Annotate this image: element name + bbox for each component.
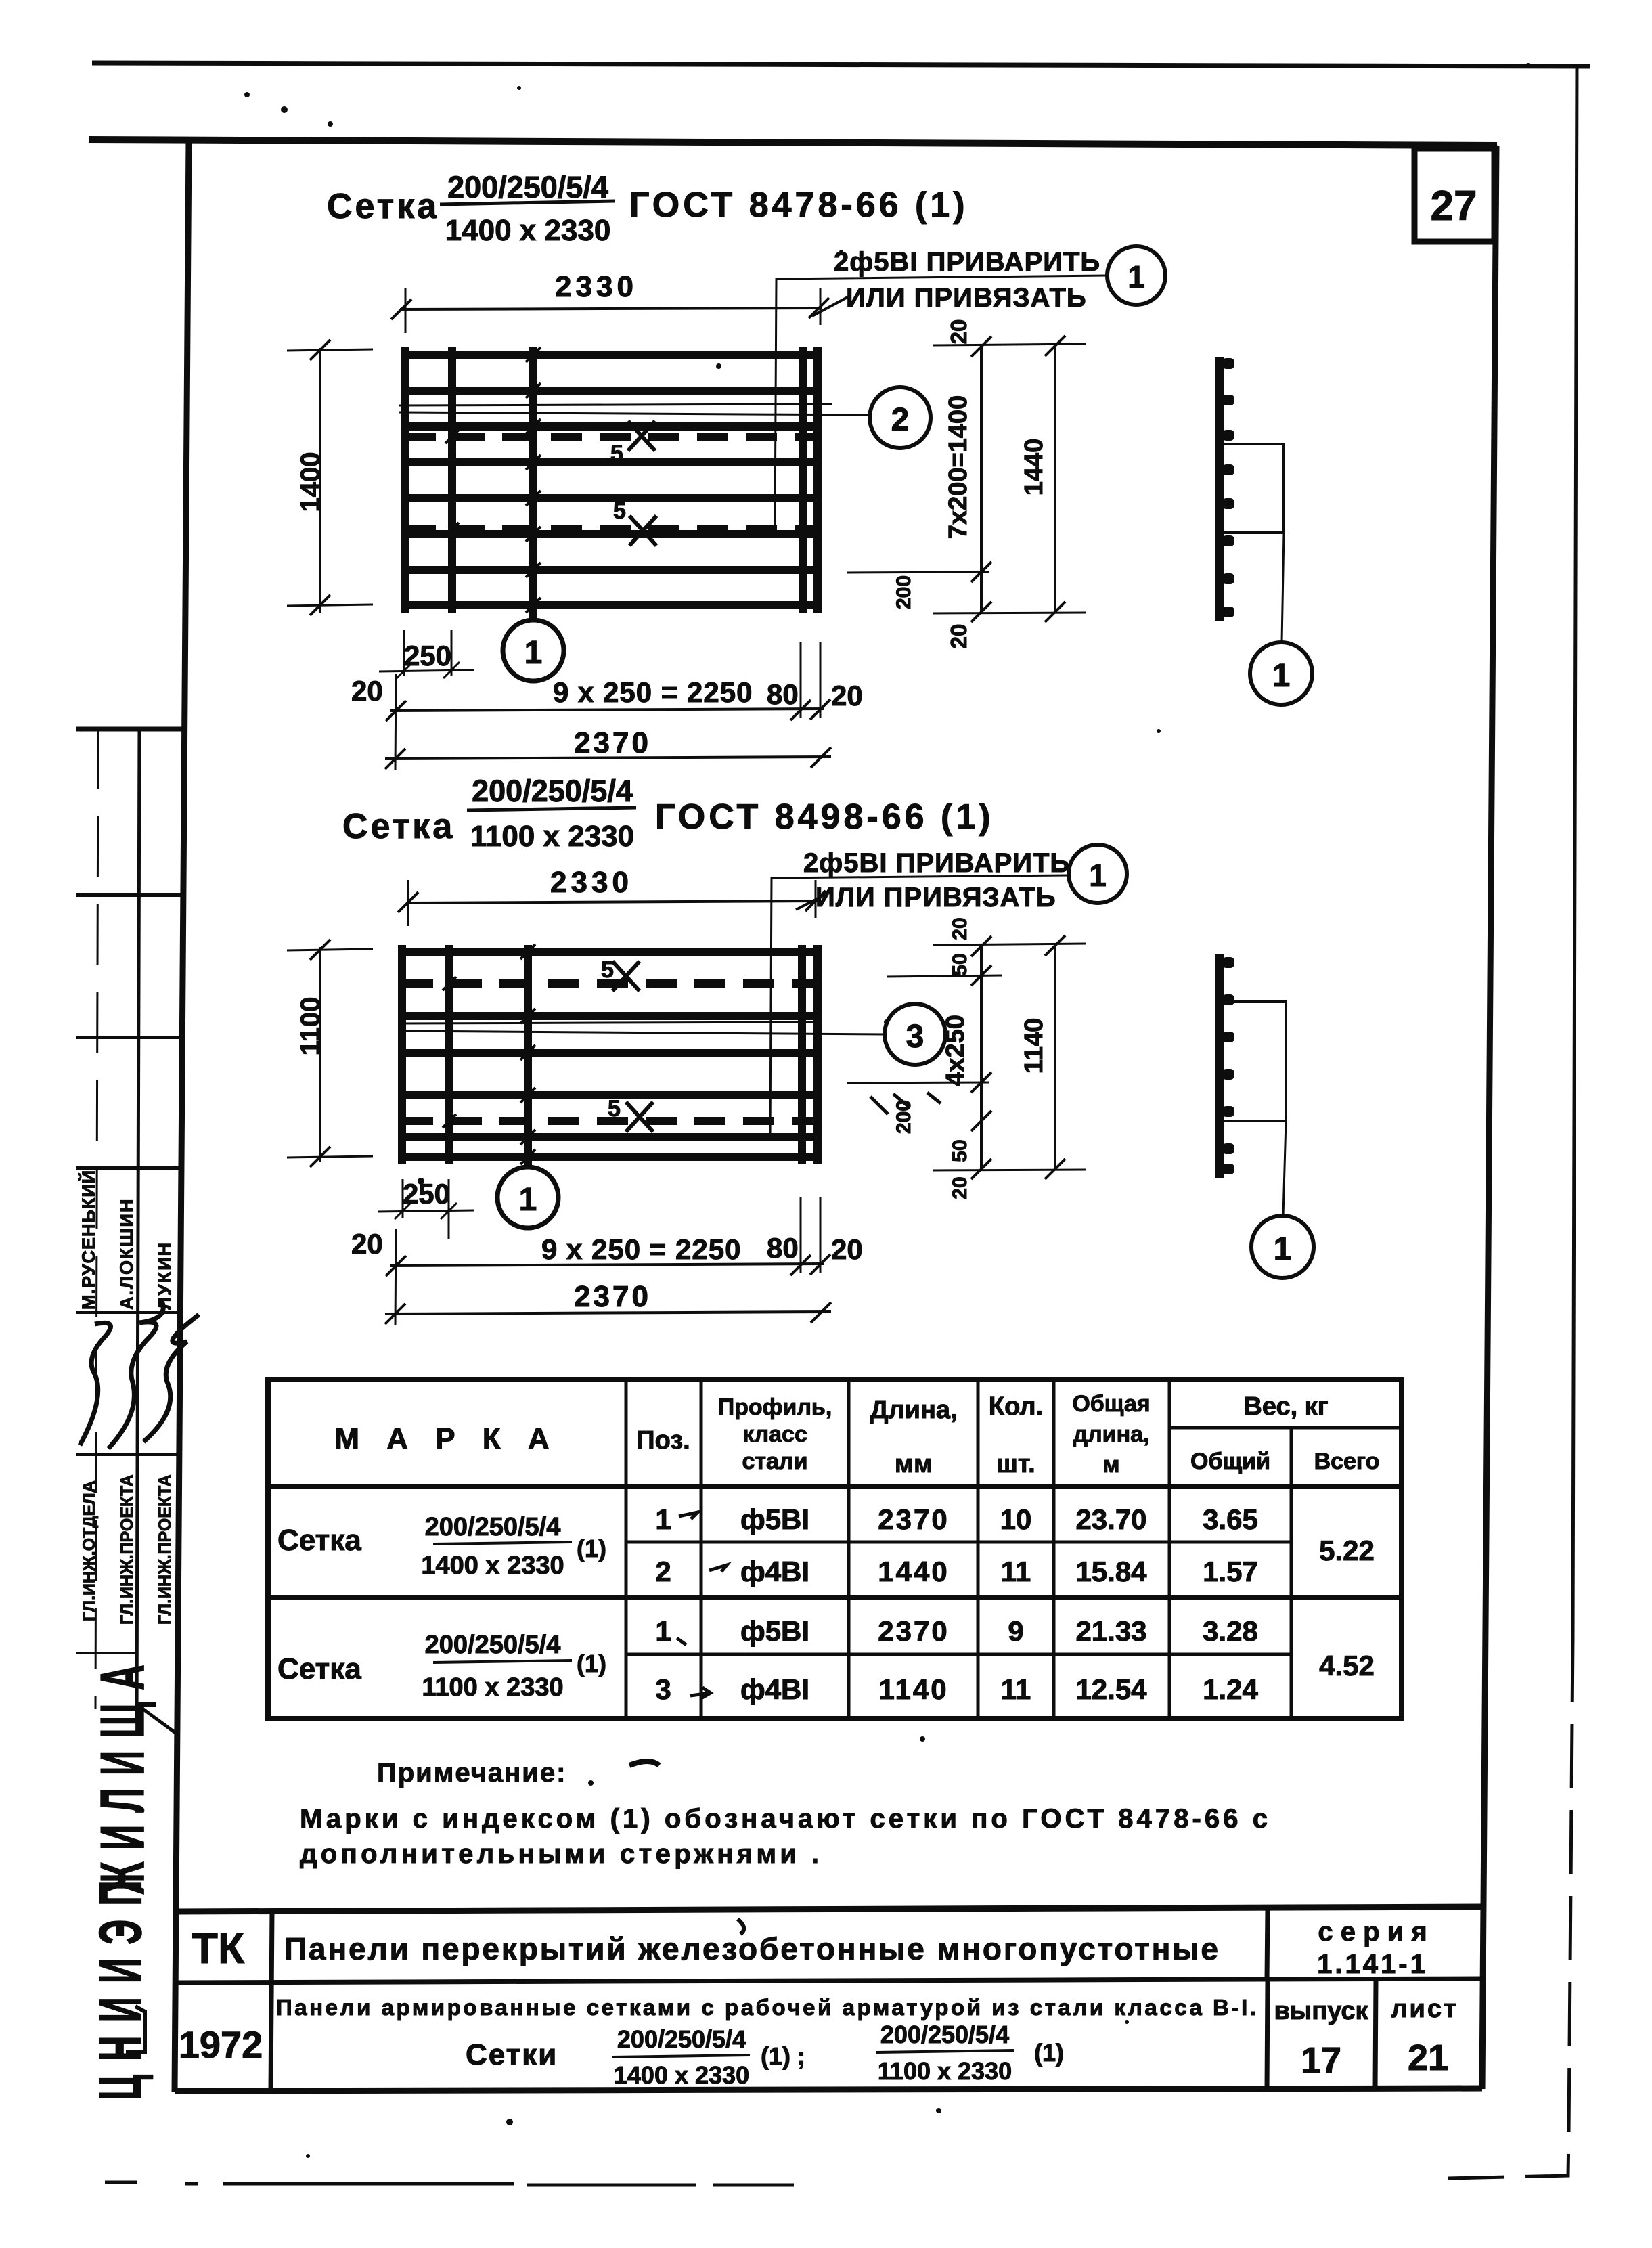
svg-text:Сетка: Сетка	[277, 1524, 361, 1557]
svg-text:12.54: 12.54	[1075, 1673, 1147, 1705]
svg-text:1: 1	[1274, 1231, 1292, 1267]
svg-text:ИЛИ ПРИВЯЗАТЬ: ИЛИ ПРИВЯЗАТЬ	[846, 283, 1087, 313]
svg-text:21.33: 21.33	[1075, 1615, 1146, 1647]
svg-text:20: 20	[351, 1228, 383, 1260]
svg-text:1400 x 2330: 1400 x 2330	[445, 214, 611, 247]
svg-text:5: 5	[613, 498, 626, 524]
svg-text:1.57: 1.57	[1203, 1556, 1258, 1587]
svg-text:М.РУСЕНЬКИЙ: М.РУСЕНЬКИЙ	[78, 1170, 99, 1310]
svg-text:шт.: шт.	[996, 1450, 1035, 1478]
svg-text:(1): (1)	[577, 1535, 606, 1562]
svg-text:200/250/5/4: 200/250/5/4	[425, 1513, 561, 1541]
svg-text:1972: 1972	[179, 2023, 263, 2066]
svg-text:200/250/5/4: 200/250/5/4	[447, 170, 608, 204]
svg-text:Сетка: Сетка	[342, 807, 455, 846]
svg-text:Примечание:: Примечание:	[377, 1758, 566, 1788]
svg-text:80: 80	[767, 1232, 799, 1264]
svg-text:2: 2	[655, 1556, 671, 1587]
svg-text:ГЛ.ИНЖ.ПРОЕКТА: ГЛ.ИНЖ.ПРОЕКТА	[156, 1474, 175, 1625]
svg-text:15.84: 15.84	[1075, 1556, 1147, 1587]
svg-text:9: 9	[1008, 1615, 1023, 1647]
svg-text:200: 200	[893, 575, 915, 609]
svg-text:1440: 1440	[878, 1556, 949, 1587]
svg-text:Всего: Всего	[1314, 1449, 1380, 1474]
svg-text:3.28: 3.28	[1203, 1615, 1258, 1647]
svg-text:200/250/5/4: 200/250/5/4	[425, 1631, 561, 1659]
svg-text:5: 5	[608, 1096, 621, 1122]
svg-text:5: 5	[610, 441, 623, 466]
svg-text:9 х 250 = 2250: 9 х 250 = 2250	[541, 1233, 741, 1265]
svg-text:4х250: 4х250	[941, 1015, 970, 1086]
svg-text:4.52: 4.52	[1319, 1650, 1375, 1681]
svg-text:200/250/5/4: 200/250/5/4	[472, 774, 633, 808]
svg-text:11: 11	[1001, 1556, 1031, 1587]
svg-text:1100 х 2330: 1100 х 2330	[878, 2057, 1012, 2085]
svg-text:1: 1	[519, 1182, 537, 1218]
svg-text:дополнительными стержнями: дополнительными стержнями .	[300, 1839, 819, 1869]
svg-text:1100 x 2330: 1100 x 2330	[470, 820, 634, 853]
svg-text:7х200=1400: 7х200=1400	[944, 395, 973, 539]
svg-text:9 х 250 = 2250: 9 х 250 = 2250	[553, 676, 753, 708]
svg-text:20: 20	[946, 319, 971, 345]
svg-text:Марки с индексом (1) обозн: Марки с индексом (1) обозначают сетки по…	[300, 1804, 1268, 1834]
svg-text:Панели армированные сетками с: Панели армированные сетками с рабочей ар…	[276, 1995, 1256, 2020]
svg-text:лист: лист	[1391, 1995, 1458, 2023]
svg-text:1400 х 2330: 1400 х 2330	[421, 1551, 564, 1580]
svg-text:1.24: 1.24	[1203, 1673, 1258, 1705]
svg-text:Кол.: Кол.	[989, 1392, 1043, 1421]
svg-text:ЖИЛИЩА: ЖИЛИЩА	[88, 1652, 157, 1894]
svg-text:2ф5ВI ПРИВАРИТЬ: 2ф5ВI ПРИВАРИТЬ	[803, 848, 1070, 878]
svg-text:А.ЛОКШИН: А.ЛОКШИН	[116, 1198, 137, 1310]
svg-text:200: 200	[893, 1100, 915, 1134]
svg-text:20: 20	[831, 1233, 863, 1265]
svg-text:ГОСТ 8498-66 (1): ГОСТ 8498-66 (1)	[655, 797, 994, 837]
svg-text:1: 1	[655, 1503, 671, 1535]
svg-text:5: 5	[601, 957, 614, 983]
svg-text:20: 20	[831, 680, 863, 711]
svg-text:ф4ВI: ф4ВI	[740, 1673, 809, 1705]
svg-text:стали: стали	[742, 1449, 808, 1474]
svg-text:1140: 1140	[1020, 1018, 1048, 1074]
svg-text:2370: 2370	[574, 1280, 651, 1313]
svg-text:выпуск: выпуск	[1274, 1997, 1368, 2025]
svg-text:мм: мм	[895, 1450, 933, 1478]
svg-text:ф4ВI: ф4ВI	[740, 1556, 809, 1587]
svg-text:ГЛ.ИНЖ.ПРОЕКТА: ГЛ.ИНЖ.ПРОЕКТА	[118, 1474, 137, 1625]
svg-text:23.70: 23.70	[1075, 1503, 1146, 1535]
svg-text:ЦНИИЭП: ЦНИИЭП	[87, 1867, 154, 2100]
svg-text:Вес, кг: Вес, кг	[1243, 1392, 1328, 1421]
svg-text:ТК: ТК	[192, 1924, 245, 1972]
svg-text:класс: класс	[742, 1421, 807, 1447]
svg-text:1140: 1140	[878, 1673, 948, 1705]
svg-text:5.22: 5.22	[1319, 1535, 1375, 1566]
svg-text:1: 1	[524, 635, 543, 671]
svg-text:80: 80	[767, 678, 799, 710]
svg-text:Общий: Общий	[1190, 1449, 1270, 1474]
svg-text:50: 50	[949, 1139, 971, 1162]
svg-text:17: 17	[1301, 2040, 1341, 2081]
svg-text:Длина,: Длина,	[870, 1396, 957, 1424]
svg-text:20: 20	[949, 1176, 971, 1199]
svg-text:ф5ВI: ф5ВI	[740, 1503, 809, 1535]
svg-text:ГЛ.ИНЖ.ОТДЕЛА: ГЛ.ИНЖ.ОТДЕЛА	[80, 1480, 99, 1621]
svg-text:21: 21	[1408, 2037, 1448, 2078]
svg-text:2370: 2370	[878, 1615, 949, 1647]
svg-text:с е р и я: с е р и я	[1318, 1917, 1427, 1947]
svg-text:Сетка: Сетка	[277, 1652, 361, 1685]
svg-text:27: 27	[1431, 183, 1477, 229]
svg-text:ЛУКИН: ЛУКИН	[154, 1241, 175, 1310]
svg-text:(1) ;: (1) ;	[761, 2042, 805, 2070]
svg-text:ГОСТ 8478-66 (1): ГОСТ 8478-66 (1)	[629, 185, 968, 225]
svg-text:1.141-1: 1.141-1	[1317, 1949, 1428, 1979]
svg-text:2: 2	[891, 402, 910, 438]
svg-text:Сетка: Сетка	[327, 187, 439, 226]
svg-text:200/250/5/4: 200/250/5/4	[617, 2025, 746, 2053]
svg-text:3.65: 3.65	[1203, 1503, 1258, 1535]
svg-text:1100 х 2330: 1100 х 2330	[422, 1673, 563, 1702]
svg-text:Поз.: Поз.	[636, 1426, 690, 1455]
svg-text:ИЛИ ПРИВЯЗАТЬ: ИЛИ ПРИВЯЗАТЬ	[816, 883, 1056, 912]
svg-text:Общая: Общая	[1072, 1391, 1150, 1417]
svg-text:2330: 2330	[555, 270, 638, 303]
svg-text:20: 20	[949, 917, 971, 940]
svg-text:200/250/5/4: 200/250/5/4	[880, 2021, 1009, 2048]
svg-text:Профиль,: Профиль,	[718, 1394, 832, 1420]
svg-text:11: 11	[1001, 1673, 1031, 1705]
svg-text:10: 10	[1000, 1503, 1032, 1535]
svg-text:2370: 2370	[878, 1503, 949, 1535]
svg-text:2ф5ВI ПРИВАРИТЬ: 2ф5ВI ПРИВАРИТЬ	[834, 247, 1100, 277]
svg-text:2330: 2330	[550, 866, 633, 899]
svg-text:1: 1	[655, 1615, 671, 1647]
svg-text:Сетки: Сетки	[466, 2038, 558, 2071]
svg-text:1440: 1440	[1020, 439, 1048, 496]
svg-text:1: 1	[1272, 658, 1291, 694]
svg-text:1: 1	[1089, 858, 1107, 893]
svg-text:Панели перекрытий железобетон: Панели перекрытий железобетонные многопу…	[284, 1931, 1218, 1966]
svg-text:М А Р К А: М А Р К А	[334, 1422, 558, 1455]
svg-text:(1): (1)	[1034, 2039, 1064, 2067]
svg-text:длина,: длина,	[1073, 1421, 1150, 1447]
svg-text:3: 3	[655, 1673, 671, 1705]
svg-text:1: 1	[1128, 259, 1145, 294]
svg-text:1400 х 2330: 1400 х 2330	[614, 2061, 749, 2089]
svg-text:3: 3	[906, 1019, 924, 1055]
svg-text:50: 50	[949, 953, 971, 975]
svg-text:ф5ВI: ф5ВI	[740, 1615, 809, 1647]
svg-text:20: 20	[351, 675, 383, 707]
svg-text:м: м	[1102, 1452, 1119, 1478]
svg-text:2370: 2370	[574, 726, 651, 759]
svg-text:(1): (1)	[577, 1650, 606, 1677]
svg-text:250: 250	[404, 640, 451, 671]
svg-text:20: 20	[946, 624, 971, 649]
